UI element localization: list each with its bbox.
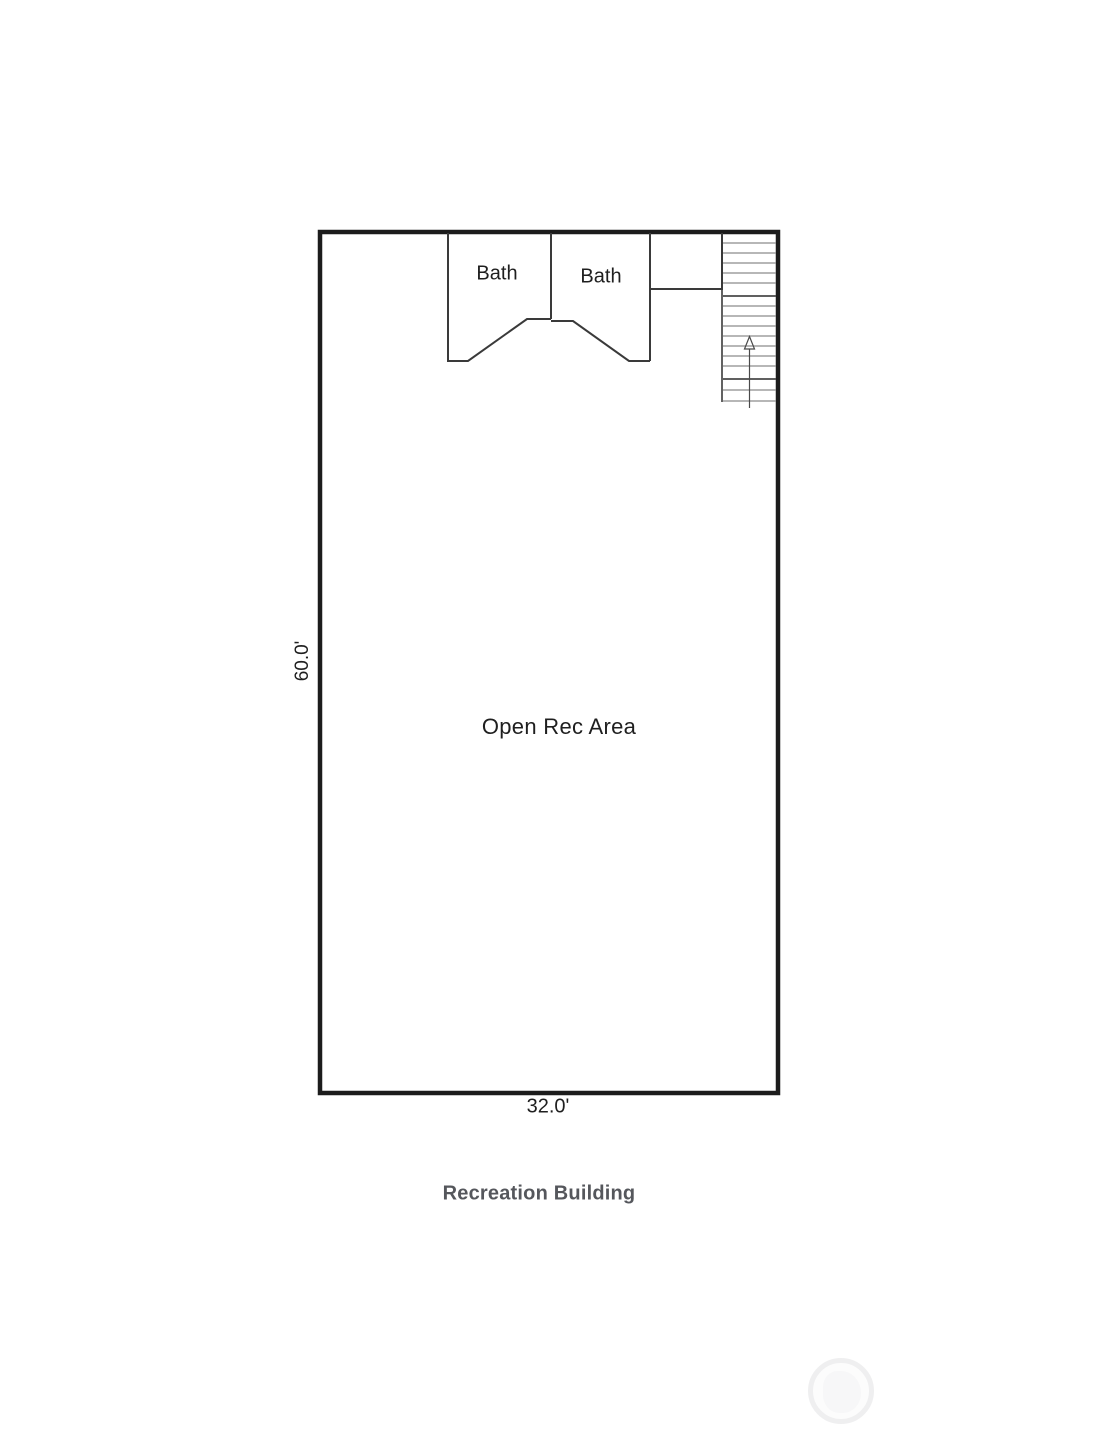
dimension-label-height: 60.0': [292, 641, 314, 682]
dimension-label-width: 32.0': [527, 1096, 570, 1119]
watermark-logo-glyph: [823, 1371, 861, 1413]
bath-right-walls: [551, 321, 650, 361]
room-label-bath-left: Bath: [476, 263, 517, 286]
plan-caption: Recreation Building: [443, 1183, 636, 1206]
building-outline: [320, 232, 778, 1093]
watermark-logo-icon: [808, 1358, 874, 1424]
closet-walls: [650, 233, 722, 289]
room-label-bath-right: Bath: [580, 266, 621, 289]
staircase-icon: [722, 243, 776, 408]
bath-left-walls: [448, 233, 551, 361]
room-label-open-rec-area: Open Rec Area: [482, 714, 636, 740]
stair-up-arrow-icon: [745, 337, 755, 409]
floor-plan-page: Bath Bath Open Rec Area 60.0' 32.0' Recr…: [0, 0, 1112, 1439]
